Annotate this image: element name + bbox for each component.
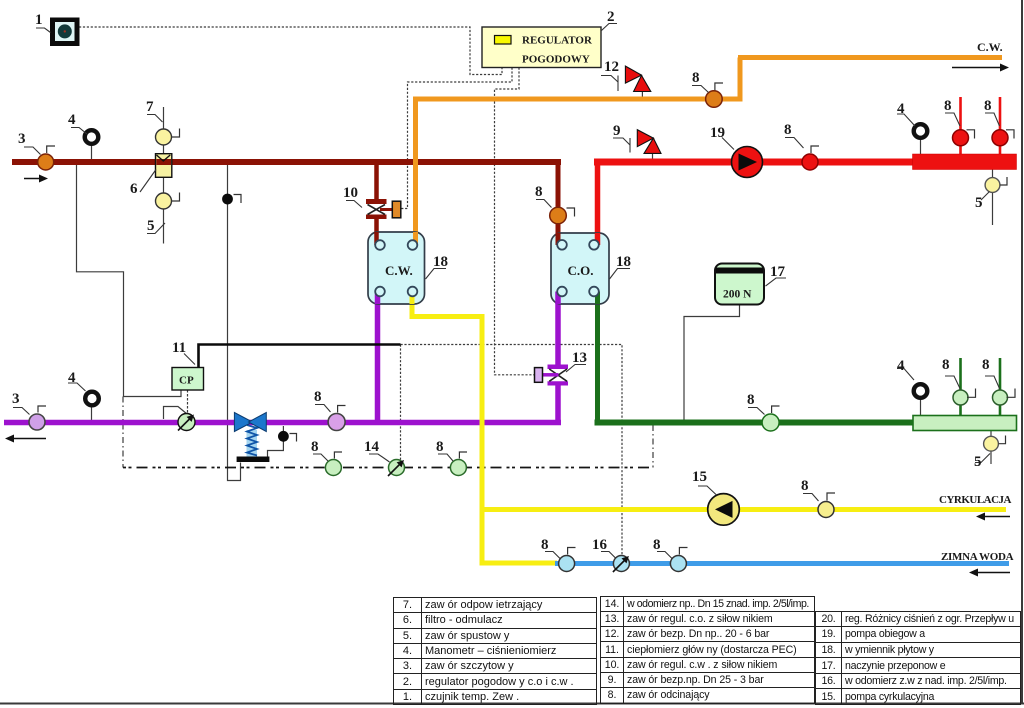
svg-text:4: 4 <box>68 370 76 386</box>
svg-text:8: 8 <box>747 392 755 408</box>
svg-text:1: 1 <box>35 12 43 28</box>
svg-text:REGULATOR: REGULATOR <box>522 35 593 47</box>
svg-text:8: 8 <box>784 122 792 138</box>
svg-text:8: 8 <box>692 70 700 86</box>
svg-text:C.O.: C.O. <box>568 263 594 278</box>
svg-text:C.W.: C.W. <box>977 40 1003 54</box>
svg-text:16: 16 <box>592 537 608 553</box>
svg-text:4: 4 <box>68 112 76 128</box>
svg-text:8: 8 <box>944 98 952 114</box>
svg-text:4: 4 <box>897 101 905 117</box>
svg-text:CYRKULACJA: CYRKULACJA <box>939 494 1012 506</box>
svg-text:15: 15 <box>692 469 707 485</box>
svg-text:14: 14 <box>364 439 380 455</box>
svg-text:8: 8 <box>982 357 990 373</box>
svg-text:8: 8 <box>984 98 992 114</box>
svg-text:3: 3 <box>12 391 20 407</box>
svg-text:19: 19 <box>710 125 725 141</box>
svg-text:5: 5 <box>975 195 983 211</box>
svg-text:9: 9 <box>613 123 621 139</box>
svg-text:7: 7 <box>146 99 154 115</box>
svg-text:8: 8 <box>535 184 543 200</box>
svg-text:12: 12 <box>604 59 619 75</box>
svg-text:4: 4 <box>897 358 905 374</box>
svg-text:11: 11 <box>172 340 186 356</box>
svg-text:8: 8 <box>801 478 809 494</box>
svg-text:18: 18 <box>616 254 631 270</box>
svg-text:5: 5 <box>974 454 982 470</box>
svg-text:200 N: 200 N <box>723 289 752 301</box>
svg-text:5: 5 <box>147 218 155 234</box>
svg-text:8: 8 <box>541 537 549 553</box>
svg-text:ZIMNA WODA: ZIMNA WODA <box>941 551 1014 563</box>
svg-text:8: 8 <box>314 389 322 405</box>
svg-text:17: 17 <box>770 264 786 280</box>
svg-text:10: 10 <box>343 185 358 201</box>
svg-text:C.W.: C.W. <box>385 263 413 278</box>
svg-text:6: 6 <box>130 181 138 197</box>
svg-text:3: 3 <box>18 131 26 147</box>
svg-text:13: 13 <box>572 350 587 366</box>
svg-text:POGODOWY: POGODOWY <box>522 54 590 66</box>
svg-text:8: 8 <box>311 439 319 455</box>
svg-text:8: 8 <box>436 439 444 455</box>
svg-text:2: 2 <box>607 9 615 25</box>
svg-text:8: 8 <box>942 357 950 373</box>
svg-text:8: 8 <box>653 537 661 553</box>
svg-text:CP: CP <box>179 375 194 387</box>
svg-text:18: 18 <box>433 254 448 270</box>
